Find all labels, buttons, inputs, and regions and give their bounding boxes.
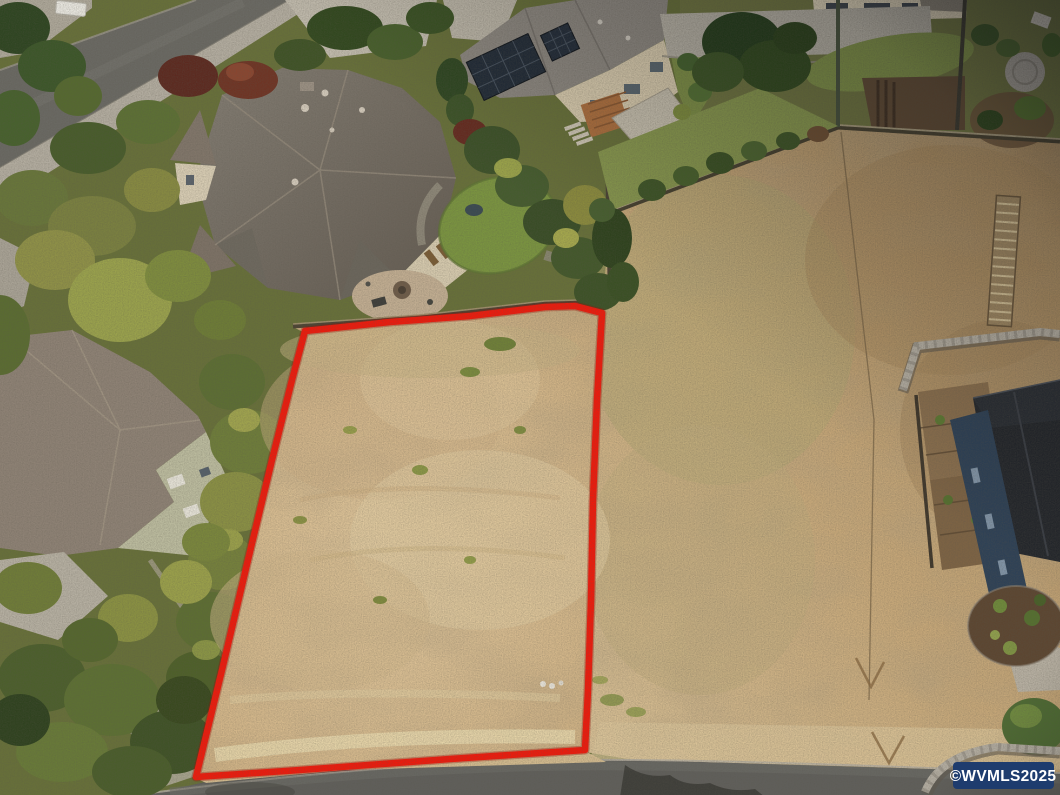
mls-watermark: ©WVMLS2025 bbox=[950, 762, 1057, 789]
watermark-text: ©WVMLS2025 bbox=[950, 768, 1057, 785]
aerial-photo: ©WVMLS2025 bbox=[0, 0, 1060, 795]
aerial-photo-stage: ©WVMLS2025 bbox=[0, 0, 1060, 795]
corner-shade bbox=[0, 0, 1060, 795]
